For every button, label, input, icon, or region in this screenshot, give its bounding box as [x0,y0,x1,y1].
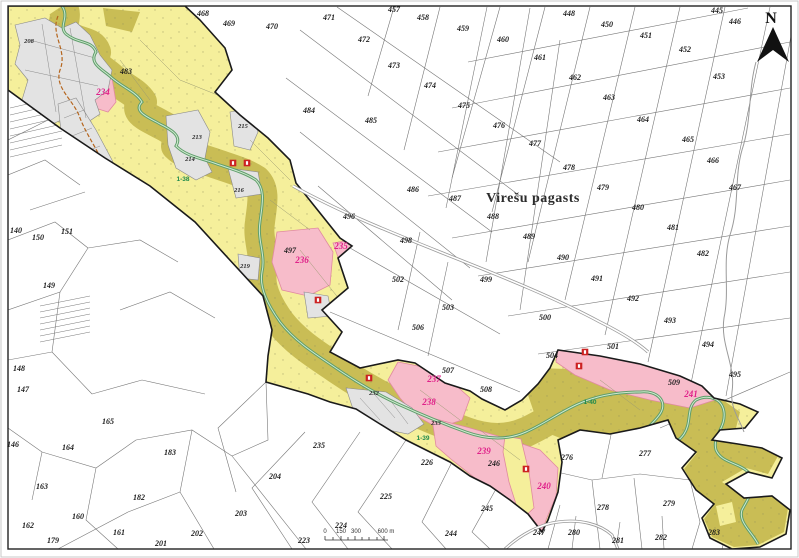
scale-label-150: 150 [336,529,347,535]
settlement-parcel-label: 232 [368,390,380,397]
parcel-number-label: 451 [639,31,652,40]
parcel-number-label: 450 [600,20,613,29]
parcel-number-label: 448 [562,9,575,18]
parcel-number-label: 162 [22,521,34,530]
red-site-marker-glyph [368,376,370,380]
parcel-number-label: 484 [302,106,315,115]
map-title: Virešu pagasts [486,191,580,206]
parcel-number-label: 165 [102,417,114,426]
parcel-number-label: 459 [456,24,469,33]
settlement-parcel-label: 214 [184,156,196,163]
settlement-parcel-label: 208 [23,38,35,45]
parcel-number-label: 470 [265,22,278,31]
detail-plan-zone-label: 236 [294,255,309,265]
detail-plan-zone-label: 240 [536,481,551,491]
parcel-number-label: 179 [47,536,59,545]
parcel-number-label: 480 [631,203,644,212]
parcel-number-label: 491 [590,274,603,283]
parcel-number-label: 148 [13,364,25,373]
parcel-number-label: 244 [444,529,457,538]
parcel-number-label: 468 [196,9,209,18]
river-segment-label: 1-38 [176,176,189,183]
parcel-number-label: 453 [712,72,725,81]
parcel-number-label: 489 [522,232,535,241]
red-site-marker-glyph [232,161,234,165]
parcel-number-label: 464 [636,115,649,124]
parcel-number-label: 478 [562,163,575,172]
parcel-number-label: 502 [392,275,404,284]
parcel-number-label: 509 [668,378,680,387]
cadastral-map-page: 4454464484504514524534574584594604614624… [0,0,799,558]
detail-plan-zone-label: 235 [333,241,348,251]
parcel-number-label: 281 [611,536,624,545]
parcel-number-label: 474 [423,81,436,90]
detail-plan-zone-label: 238 [421,397,436,407]
parcel-number-label: 495 [728,370,741,379]
red-site-marker-glyph [525,467,527,471]
parcel-number-label: 225 [379,492,392,501]
parcel-number-label: 452 [678,45,691,54]
parcel-number-label: 204 [268,472,281,481]
parcel-number-label: 164 [62,443,74,452]
parcel-number-label: 445 [710,6,723,15]
scale-label-600: 600 m [378,529,395,535]
parcel-number-label: 458 [416,13,429,22]
parcel-number-label: 475 [457,101,470,110]
parcel-number-label: 503 [442,303,454,312]
settlement-parcel-label: 233 [430,420,442,427]
parcel-number-label: 226 [420,458,433,467]
parcel-number-label: 246 [487,459,500,468]
parcel-number-label: 149 [43,281,55,290]
settlement-parcel-label: 216 [233,187,245,194]
parcel-number-label: 487 [448,194,462,203]
parcel-number-label: 465 [681,135,694,144]
red-site-marker-glyph [317,298,319,302]
parcel-number-label: 501 [607,342,619,351]
north-label: N [765,10,777,27]
parcel-number-label: 488 [486,212,499,221]
parcel-number-label: 504 [546,351,558,360]
parcel-number-label: 498 [399,236,412,245]
cadastral-map: 4454464484504514524534574584594604614624… [0,0,799,558]
parcel-number-label: 467 [728,183,742,192]
parcel-number-label: 463 [602,93,615,102]
parcel-number-label: 473 [387,61,400,70]
parcel-number-label: 146 [7,440,19,449]
parcel-number-label: 492 [626,294,639,303]
parcel-number-label: 282 [654,533,667,542]
parcel-number-label: 481 [666,223,679,232]
parcel-number-label: 508 [480,385,492,394]
detail-plan-zone-label: 241 [683,389,698,399]
parcel-number-label: 203 [234,509,247,518]
parcel-number-label: 160 [72,512,84,521]
parcel-number-label: 283 [707,528,720,537]
red-site-marker-glyph [584,350,586,354]
parcel-number-label: 235 [312,441,325,450]
parcel-number-label: 466 [706,156,719,165]
parcel-number-label: 201 [154,539,167,548]
parcel-number-label: 506 [412,323,424,332]
river-segment-label: 1-40 [583,399,596,406]
parcel-number-label: 446 [728,17,741,26]
parcel-number-label: 163 [36,482,48,491]
parcel-number-label: 494 [701,340,714,349]
parcel-number-label: 151 [61,227,73,236]
parcel-number-label: 507 [442,366,455,375]
parcel-number-label: 493 [663,316,676,325]
parcel-number-label: 223 [297,536,310,545]
parcel-number-label: 482 [696,249,709,258]
parcel-number-label: 461 [533,53,546,62]
parcel-number-label: 460 [496,35,509,44]
detail-plan-zone-label: 237 [426,374,441,384]
parcel-number-label: 490 [556,253,569,262]
detail-plan-zone-label: 234 [95,87,110,97]
parcel-number-label: 499 [479,275,492,284]
parcel-number-label: 483 [119,67,132,76]
parcel-number-label: 182 [133,493,145,502]
parcel-number-label: 479 [596,183,609,192]
parcel-number-label: 472 [357,35,370,44]
parcel-number-label: 477 [528,139,542,148]
parcel-number-label: 247 [532,528,546,537]
parcel-number-label: 500 [539,313,551,322]
parcel-number-label: 277 [638,449,652,458]
parcel-number-label: 202 [190,529,203,538]
parcel-number-label: 469 [222,19,235,28]
parcel-number-label: 278 [596,503,609,512]
parcel-number-label: 276 [560,453,573,462]
parcel-number-label: 150 [32,233,44,242]
settlement-parcel-label: 219 [239,263,251,270]
scale-label-300: 300 [351,529,362,535]
parcel-number-label: 279 [662,499,675,508]
red-site-marker-glyph [578,364,580,368]
parcel-number-label: 471 [322,13,335,22]
parcel-number-label: 476 [492,121,505,130]
parcel-number-label: 497 [283,246,297,255]
parcel-number-label: 245 [480,504,493,513]
detail-plan-zone-label: 239 [476,446,491,456]
river-segment-label: 1-39 [416,435,429,442]
settlement-parcel-label: 215 [237,123,249,130]
parcel-number-label: 147 [17,385,30,394]
parcel-number-label: 486 [406,185,419,194]
parcel-number-label: 485 [364,116,377,125]
parcel-number-label: 462 [568,73,581,82]
parcel-number-label: 280 [567,528,580,537]
parcel-number-label: 140 [10,226,22,235]
settlement-parcel-label: 213 [191,134,203,141]
parcel-number-label: 496 [342,212,355,221]
parcel-number-label: 161 [113,528,125,537]
parcel-number-label: 183 [164,448,176,457]
red-site-marker-glyph [246,161,248,165]
